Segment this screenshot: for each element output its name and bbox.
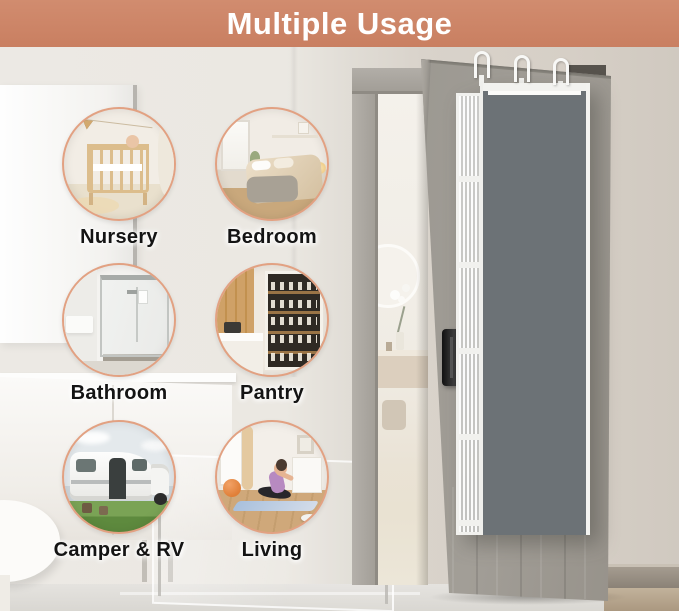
- bed: [245, 154, 323, 204]
- camper-door: [109, 458, 126, 499]
- pantry-shelves: [265, 271, 322, 370]
- curtain: [242, 426, 253, 490]
- blanket: [246, 176, 298, 203]
- cloud: [141, 440, 170, 451]
- crib-leg: [143, 193, 147, 205]
- wall-shelf: [272, 135, 318, 138]
- organizer-mesh-rows: [459, 96, 479, 532]
- over-door-organizer: [456, 83, 590, 535]
- jar-row: [271, 300, 316, 308]
- clear-window: [488, 91, 581, 95]
- jar-row: [271, 335, 316, 343]
- flower-vase: [396, 332, 404, 350]
- bunting-flag: [81, 120, 92, 130]
- page-header: Multiple Usage: [0, 0, 679, 47]
- camp-chair: [82, 503, 92, 513]
- bathroom-photo: [62, 263, 176, 377]
- usage-label: Camper & RV: [44, 539, 194, 562]
- round-side-table-leg: [0, 575, 10, 611]
- over-door-hook-icon: [474, 51, 490, 78]
- bunting-banner: [81, 119, 152, 139]
- organizer-front: [480, 83, 590, 535]
- flower: [402, 284, 410, 292]
- usage-label: Pantry: [197, 382, 347, 405]
- usage-label: Nursery: [44, 226, 194, 249]
- over-door-hook-icon: [553, 58, 569, 85]
- door-lock-plate: [427, 315, 434, 437]
- camp-chair: [99, 506, 108, 515]
- pantry-photo: [215, 263, 329, 377]
- usage-card-nursery: Nursery: [44, 107, 194, 249]
- lower-cabinet: [217, 341, 263, 375]
- usage-card-bathroom: Bathroom: [44, 263, 194, 405]
- usage-card-living: Living: [197, 420, 347, 562]
- vanity-item: [386, 342, 392, 351]
- usage-label: Living: [197, 539, 347, 562]
- flower-stem: [397, 306, 406, 334]
- doorway-room-view: [378, 94, 428, 585]
- rug: [68, 197, 119, 214]
- pocket-window-baby-boxes: [483, 83, 586, 91]
- window: [219, 431, 243, 486]
- bathroom-floor: [64, 361, 174, 375]
- living-room-photo: [215, 420, 329, 534]
- usage-label: Bathroom: [44, 382, 194, 405]
- wheel: [154, 493, 167, 505]
- crib-leg: [89, 193, 93, 205]
- flower: [398, 296, 405, 303]
- picture-frame: [297, 435, 314, 454]
- jar-row: [271, 282, 316, 290]
- organizer-mesh-side: [456, 93, 482, 535]
- shower-head: [127, 290, 137, 294]
- shower-window: [138, 290, 148, 304]
- jar-row: [271, 353, 316, 361]
- usage-card-pantry: Pantry: [197, 263, 347, 405]
- camper-window: [132, 459, 147, 471]
- jar-row: [271, 317, 316, 325]
- camper-van: [70, 452, 169, 500]
- stool: [382, 400, 406, 430]
- vanity: [66, 316, 92, 334]
- cloud: [73, 431, 110, 444]
- nursery-photo: [62, 107, 176, 221]
- bedroom-photo: [215, 107, 329, 221]
- product-usage-banner: Nursery Bedroom: [0, 0, 679, 611]
- usage-card-camper-rv: Camper & RV: [44, 420, 194, 562]
- truck-cab: [151, 464, 169, 495]
- picture-frame: [298, 122, 309, 134]
- room-scene: Nursery Bedroom: [0, 47, 679, 611]
- usage-label: Bedroom: [197, 226, 347, 249]
- doorway-shadow: [416, 94, 428, 585]
- baseboard: [604, 564, 679, 590]
- woman-doing-yoga: [253, 462, 297, 506]
- appliance: [224, 322, 242, 333]
- curtain: [158, 117, 177, 196]
- exercise-ball: [223, 479, 241, 497]
- counter: [217, 333, 263, 341]
- glass-door-seam: [136, 287, 138, 341]
- door-handle-slot: [450, 337, 453, 378]
- door-frame: [352, 68, 378, 585]
- crib-mattress: [93, 164, 142, 171]
- camper-rv-photo: [62, 420, 176, 534]
- over-door-hook-icon: [514, 55, 530, 82]
- shower-glass: [100, 275, 168, 358]
- baby-crib: [87, 144, 149, 192]
- camper-window: [76, 459, 96, 472]
- page-title: Multiple Usage: [227, 6, 453, 42]
- baby: [126, 135, 139, 148]
- usage-card-bedroom: Bedroom: [197, 107, 347, 249]
